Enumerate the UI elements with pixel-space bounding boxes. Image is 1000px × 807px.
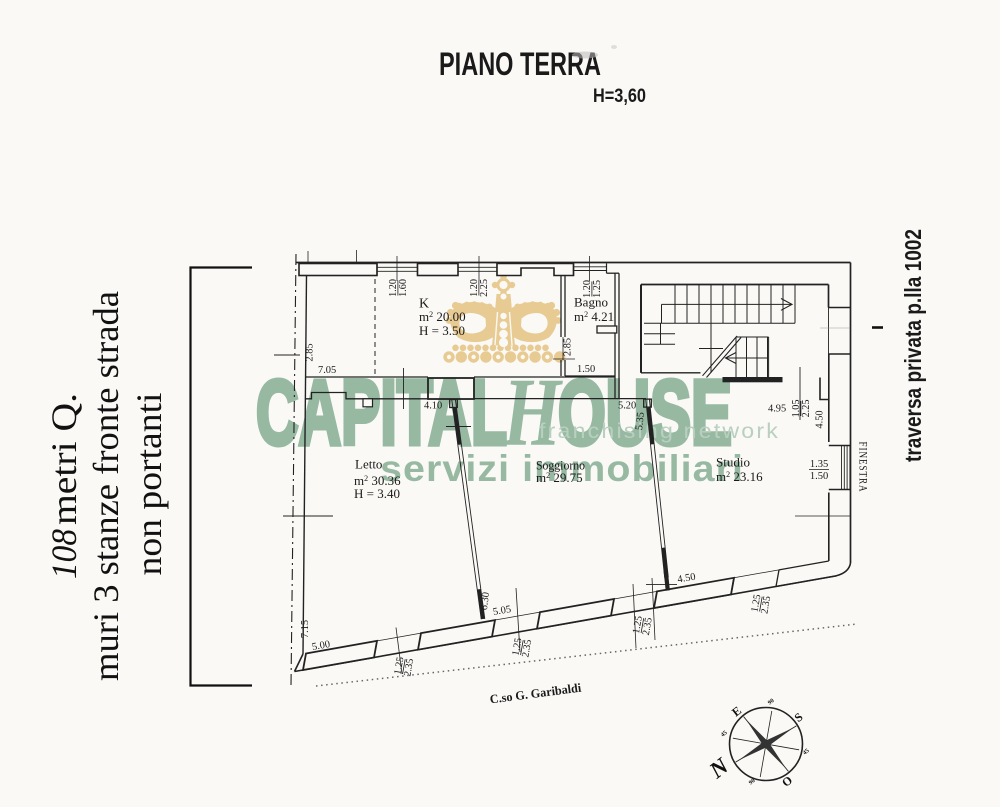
- svg-text:5.20: 5.20: [618, 400, 636, 411]
- svg-text:S: S: [792, 710, 806, 725]
- svg-text:1.35: 1.35: [810, 459, 828, 470]
- svg-text:H = 3.40: H = 3.40: [354, 486, 400, 501]
- svg-text:m2 4.21: m2 4.21: [574, 309, 614, 324]
- svg-text:1.50: 1.50: [810, 471, 828, 482]
- svg-text:2.85: 2.85: [563, 338, 574, 356]
- svg-text:45: 45: [720, 730, 728, 738]
- svg-text:m2 23.16: m2 23.16: [716, 469, 763, 484]
- svg-text:108: 108: [44, 529, 84, 579]
- svg-text:H = 3.50: H = 3.50: [419, 323, 465, 338]
- svg-text:1.60: 1.60: [398, 279, 409, 297]
- svg-text:2.35: 2.35: [402, 658, 416, 677]
- svg-text:4.50: 4.50: [677, 572, 697, 586]
- svg-text:m2 20.00: m2 20.00: [419, 309, 466, 324]
- svg-text:2.35: 2.35: [520, 639, 534, 658]
- svg-text:2.25: 2.25: [479, 279, 490, 297]
- svg-text:Letto: Letto: [355, 457, 382, 472]
- svg-text:traversa privata p.lla 1002: traversa privata p.lla 1002: [900, 229, 926, 462]
- svg-text:5.35: 5.35: [634, 412, 647, 431]
- svg-text:4.50: 4.50: [815, 410, 826, 428]
- svg-text:1.50: 1.50: [577, 364, 595, 375]
- svg-text:N: N: [704, 752, 734, 783]
- svg-text:7.15: 7.15: [300, 620, 311, 638]
- svg-text:m2 29.75: m2 29.75: [536, 470, 583, 485]
- svg-text:franchising network: franchising network: [539, 420, 780, 443]
- svg-text:FINESTRA: FINESTRA: [857, 442, 869, 493]
- svg-text:1.25: 1.25: [592, 280, 603, 298]
- svg-text:O: O: [779, 773, 795, 790]
- svg-text:5.05: 5.05: [492, 604, 512, 618]
- svg-text:2.25: 2.25: [801, 400, 812, 418]
- svg-text:6.30: 6.30: [479, 591, 492, 610]
- svg-text:4.95: 4.95: [768, 404, 786, 415]
- svg-text:45: 45: [802, 748, 810, 756]
- svg-text:non portanti: non portanti: [129, 393, 169, 576]
- svg-text:PIANO TERRA: PIANO TERRA: [439, 46, 601, 82]
- svg-text:muri 3 stanze fronte strada: muri 3 stanze fronte strada: [86, 291, 126, 681]
- svg-text:Studio: Studio: [716, 455, 750, 470]
- svg-text:H=3,60: H=3,60: [593, 86, 646, 107]
- svg-text:4.10: 4.10: [424, 401, 442, 412]
- svg-text:2.85: 2.85: [305, 343, 316, 361]
- svg-text:7.05: 7.05: [318, 365, 336, 376]
- svg-text:2.35: 2.35: [759, 595, 773, 614]
- svg-text:90: 90: [767, 698, 775, 706]
- svg-text:2.35: 2.35: [641, 617, 655, 636]
- svg-text:metri Q.: metri Q.: [44, 393, 84, 525]
- svg-text:C.so G. Garibaldi: C.so G. Garibaldi: [489, 681, 583, 707]
